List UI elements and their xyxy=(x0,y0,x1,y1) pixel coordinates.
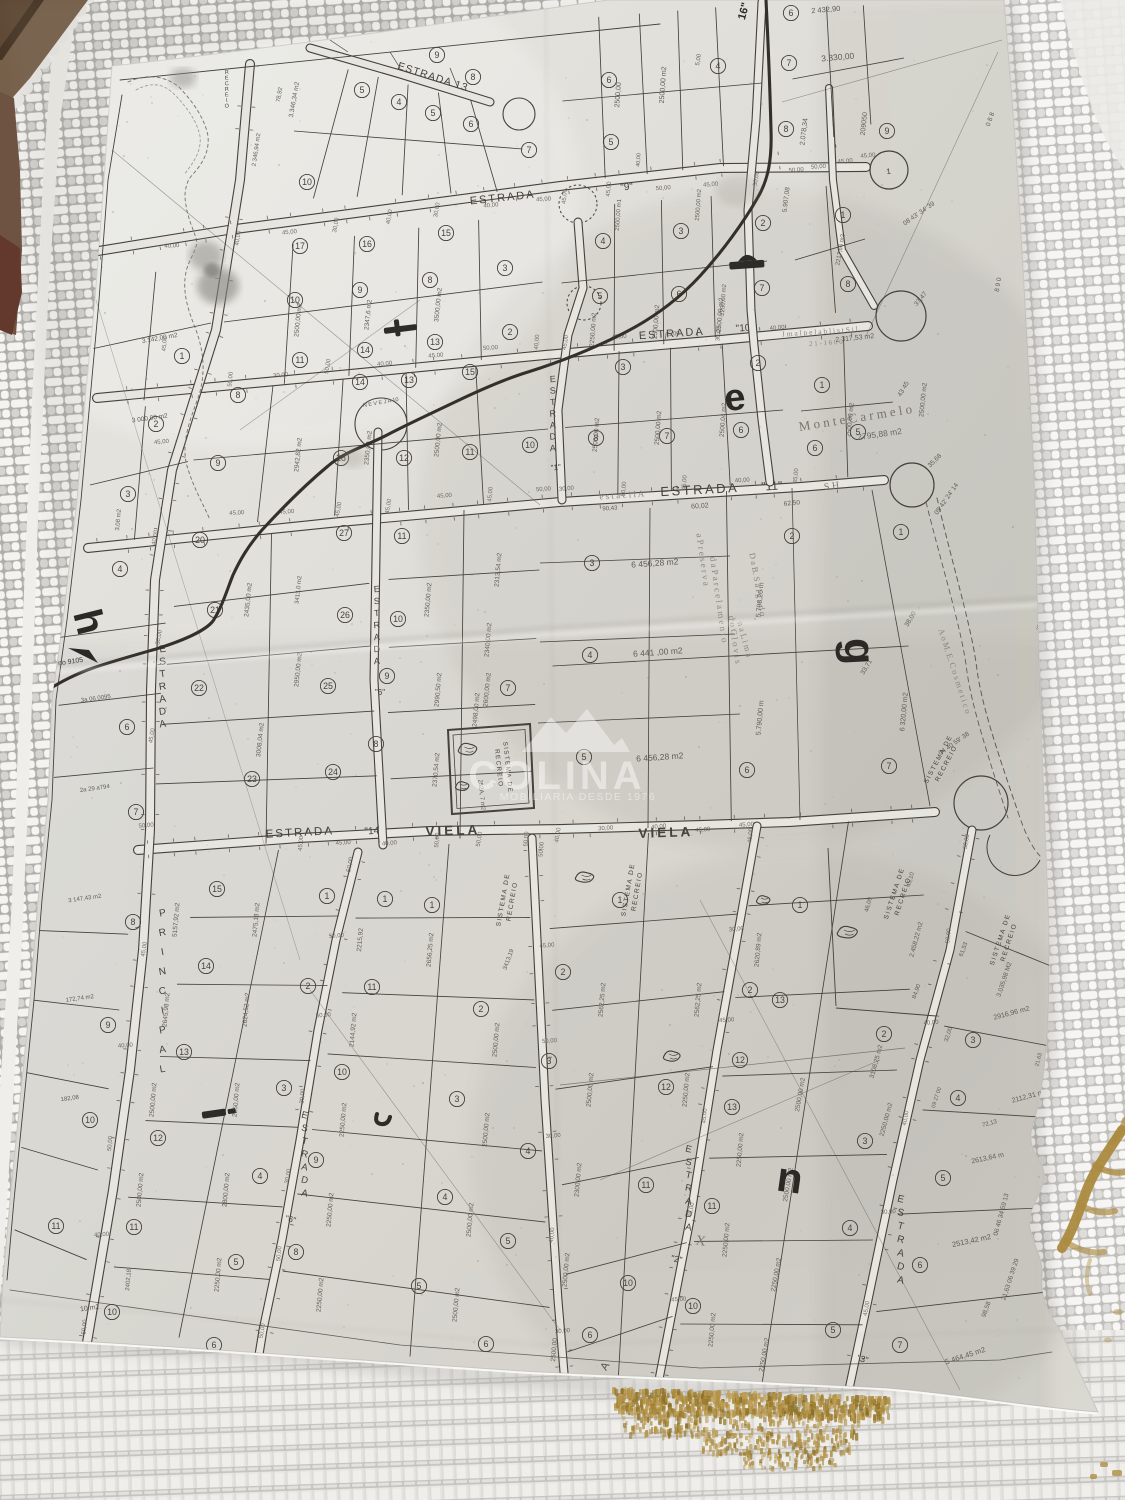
svg-text:9: 9 xyxy=(885,126,890,136)
svg-text:6: 6 xyxy=(918,1260,923,1270)
svg-text:6: 6 xyxy=(469,119,474,129)
svg-text:5: 5 xyxy=(831,1325,836,1335)
svg-text:16: 16 xyxy=(362,239,372,249)
svg-text:2: 2 xyxy=(761,218,766,228)
svg-text:10: 10 xyxy=(525,440,535,450)
svg-text:4: 4 xyxy=(526,1146,531,1156)
svg-text:5: 5 xyxy=(360,85,365,95)
svg-text:4: 4 xyxy=(258,1171,263,1181)
svg-text:2: 2 xyxy=(790,531,795,541)
svg-text:1: 1 xyxy=(180,351,185,361)
svg-text:g: g xyxy=(834,637,884,666)
svg-text:13: 13 xyxy=(727,1102,737,1112)
svg-text:11: 11 xyxy=(367,982,376,992)
svg-text:9: 9 xyxy=(106,1020,111,1030)
svg-text:4: 4 xyxy=(716,61,721,71)
svg-text:4: 4 xyxy=(588,650,593,660)
svg-text:40,00: 40,00 xyxy=(94,1232,110,1239)
svg-text:8: 8 xyxy=(374,739,379,749)
svg-text:10: 10 xyxy=(623,1278,633,1288)
svg-text:4: 4 xyxy=(848,1223,853,1233)
svg-text:22: 22 xyxy=(194,683,204,693)
svg-text:14: 14 xyxy=(355,377,365,387)
svg-text:2: 2 xyxy=(508,327,513,337)
svg-text:45,00: 45,00 xyxy=(739,822,755,829)
svg-text:7: 7 xyxy=(527,145,532,155)
svg-text:7: 7 xyxy=(134,807,139,817)
svg-text:4: 4 xyxy=(601,236,606,246)
svg-text:1: 1 xyxy=(325,891,330,901)
svg-text:7: 7 xyxy=(506,683,511,693)
svg-text:6: 6 xyxy=(813,443,818,453)
svg-text:6: 6 xyxy=(789,8,794,18)
svg-text:3: 3 xyxy=(863,1136,868,1146)
svg-text:2: 2 xyxy=(756,358,761,368)
svg-text:45,00: 45,00 xyxy=(336,840,352,847)
svg-text:6: 6 xyxy=(588,1330,593,1340)
svg-text:5: 5 xyxy=(417,1281,422,1291)
svg-text:62,50: 62,50 xyxy=(783,499,800,507)
svg-text:7: 7 xyxy=(887,761,892,771)
svg-text:10: 10 xyxy=(688,1301,698,1311)
svg-text:40,00: 40,00 xyxy=(735,477,751,484)
svg-text:7: 7 xyxy=(898,1340,903,1350)
svg-text:3: 3 xyxy=(503,263,508,273)
svg-text:30,00: 30,00 xyxy=(881,1209,897,1216)
svg-text:2: 2 xyxy=(748,985,753,995)
svg-text:15: 15 xyxy=(465,367,475,377)
svg-text:9: 9 xyxy=(435,50,440,60)
svg-text:2: 2 xyxy=(479,1004,484,1014)
svg-text:11: 11 xyxy=(51,1221,60,1231)
svg-text:10: 10 xyxy=(85,1115,95,1125)
svg-text:3: 3 xyxy=(547,1056,552,1066)
svg-text:1: 1 xyxy=(820,380,825,390)
svg-text:11: 11 xyxy=(641,1180,650,1190)
svg-text:10: 10 xyxy=(393,614,403,624)
svg-text:1: 1 xyxy=(430,900,435,910)
svg-text:4: 4 xyxy=(397,97,402,107)
svg-text:15: 15 xyxy=(441,228,451,238)
svg-text:5: 5 xyxy=(506,1236,511,1246)
svg-text:8: 8 xyxy=(131,917,136,927)
svg-text:24: 24 xyxy=(328,767,338,777)
svg-text:23: 23 xyxy=(247,774,257,784)
svg-text:45,00: 45,00 xyxy=(719,1017,735,1024)
svg-text:1: 1 xyxy=(798,900,803,910)
svg-text:7: 7 xyxy=(760,283,765,293)
svg-text:3: 3 xyxy=(679,226,684,236)
svg-text:4: 4 xyxy=(118,564,123,574)
svg-text:11: 11 xyxy=(129,1222,138,1232)
svg-text:12: 12 xyxy=(661,1082,671,1092)
svg-text:14: 14 xyxy=(360,345,370,355)
svg-text:12: 12 xyxy=(399,453,409,463)
svg-text:E: E xyxy=(549,374,556,384)
svg-text:9: 9 xyxy=(216,458,221,468)
svg-text:3: 3 xyxy=(590,558,595,568)
svg-text:12: 12 xyxy=(153,1133,163,1143)
svg-text:9: 9 xyxy=(314,1155,319,1165)
svg-text:3: 3 xyxy=(971,1035,976,1045)
svg-text:40,00: 40,00 xyxy=(636,153,643,167)
svg-text:7: 7 xyxy=(787,58,792,68)
svg-text:26: 26 xyxy=(340,610,350,620)
svg-text:2: 2 xyxy=(882,1029,887,1039)
svg-text:8: 8 xyxy=(471,72,476,82)
svg-text:11: 11 xyxy=(707,1201,716,1211)
svg-text:10: 10 xyxy=(337,1067,347,1077)
svg-text:8: 8 xyxy=(428,275,433,285)
svg-text:3: 3 xyxy=(621,362,626,372)
svg-text:S: S xyxy=(549,385,556,395)
svg-text:10: 10 xyxy=(302,177,312,187)
svg-text:40,00: 40,00 xyxy=(164,243,180,250)
svg-text:11: 11 xyxy=(397,531,406,541)
svg-text:6: 6 xyxy=(745,765,750,775)
svg-text:11: 11 xyxy=(295,355,304,365)
svg-text:50,00: 50,00 xyxy=(483,345,499,352)
svg-text:"1": "1" xyxy=(550,463,561,473)
svg-text:5: 5 xyxy=(609,137,614,147)
svg-text:15: 15 xyxy=(212,884,222,894)
svg-text:45,00: 45,00 xyxy=(437,493,453,500)
svg-text:"6": "6" xyxy=(375,688,385,697)
svg-text:3: 3 xyxy=(126,489,131,499)
svg-text:17: 17 xyxy=(295,241,305,251)
svg-text:4: 4 xyxy=(956,1093,961,1103)
svg-text:2: 2 xyxy=(561,967,566,977)
svg-text:40,00: 40,00 xyxy=(923,1020,939,1027)
svg-text:13: 13 xyxy=(775,995,785,1005)
svg-text:60,02: 60,02 xyxy=(691,502,709,510)
svg-text:40,00: 40,00 xyxy=(118,1043,134,1050)
svg-text:90,43: 90,43 xyxy=(602,505,618,512)
svg-text:"9": "9" xyxy=(620,181,634,193)
svg-text:25: 25 xyxy=(323,681,333,691)
svg-text:8: 8 xyxy=(784,124,789,134)
svg-text:1: 1 xyxy=(383,894,388,904)
svg-text:S.H: S.H xyxy=(823,480,840,493)
svg-text:6: 6 xyxy=(739,425,744,435)
svg-text:8: 8 xyxy=(236,390,241,400)
svg-text:45,00: 45,00 xyxy=(229,510,245,517)
svg-text:E: E xyxy=(373,584,380,594)
svg-text:45,00: 45,00 xyxy=(536,196,552,203)
svg-text:e: e xyxy=(722,376,747,420)
svg-text:50,00: 50,00 xyxy=(811,164,827,171)
svg-text:8: 8 xyxy=(294,1247,299,1257)
svg-text:27: 27 xyxy=(339,528,349,538)
svg-text:45,00: 45,00 xyxy=(428,353,444,360)
svg-text:11: 11 xyxy=(465,447,474,457)
svg-text:14: 14 xyxy=(201,961,211,971)
svg-text:2: 2 xyxy=(306,981,311,991)
svg-text:5: 5 xyxy=(598,291,603,301)
svg-text:13: 13 xyxy=(404,375,414,385)
svg-text:R: R xyxy=(158,681,167,693)
svg-text:3: 3 xyxy=(282,1083,287,1093)
svg-text:VIELA: VIELA xyxy=(425,822,480,839)
svg-text:20: 20 xyxy=(195,535,205,545)
svg-text:1: 1 xyxy=(899,527,904,537)
svg-text:9: 9 xyxy=(385,671,390,681)
svg-text:5: 5 xyxy=(431,108,436,118)
svg-text:3: 3 xyxy=(455,1094,460,1104)
svg-text:MOBILIARIA DESDE 1976: MOBILIARIA DESDE 1976 xyxy=(500,791,656,803)
svg-text:6: 6 xyxy=(212,1340,217,1350)
svg-text:13: 13 xyxy=(179,1047,189,1057)
svg-text:8: 8 xyxy=(846,279,851,289)
svg-text:45,00: 45,00 xyxy=(671,1296,687,1303)
svg-text:6: 6 xyxy=(607,75,612,85)
svg-text:50,00: 50,00 xyxy=(656,185,672,192)
svg-text:1: 1 xyxy=(841,210,846,220)
svg-text:5: 5 xyxy=(234,1257,239,1267)
svg-text:12: 12 xyxy=(735,1055,745,1065)
svg-text:6: 6 xyxy=(125,722,130,732)
svg-text:5: 5 xyxy=(941,1173,946,1183)
svg-text:13: 13 xyxy=(430,337,440,347)
svg-text:S: S xyxy=(373,596,380,606)
svg-text:30,00: 30,00 xyxy=(598,825,614,832)
svg-text:A: A xyxy=(373,656,380,666)
svg-text:4: 4 xyxy=(443,1192,448,1202)
svg-text:7: 7 xyxy=(665,431,670,441)
svg-text:R: R xyxy=(373,620,381,630)
svg-text:9: 9 xyxy=(358,285,363,295)
svg-text:50,00: 50,00 xyxy=(789,167,805,174)
